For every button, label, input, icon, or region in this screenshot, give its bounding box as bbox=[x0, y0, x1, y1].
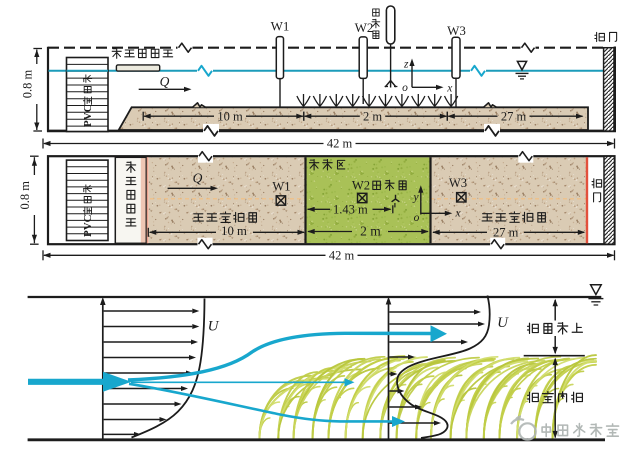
svg-text:W2: W2 bbox=[355, 20, 374, 35]
svg-text:27 m: 27 m bbox=[501, 109, 527, 123]
svg-text:o: o bbox=[402, 82, 408, 94]
svg-text:PVC: PVC bbox=[82, 214, 94, 237]
svg-text:W1: W1 bbox=[272, 180, 290, 194]
svg-text:2 m: 2 m bbox=[363, 109, 382, 123]
svg-text:2 m: 2 m bbox=[360, 223, 381, 238]
svg-text:z: z bbox=[403, 59, 409, 71]
svg-text:W3: W3 bbox=[447, 23, 466, 38]
svg-text:W3: W3 bbox=[449, 176, 467, 190]
svg-text:42 m: 42 m bbox=[327, 137, 353, 151]
svg-text:x: x bbox=[454, 208, 461, 220]
svg-text:W2: W2 bbox=[352, 179, 370, 193]
svg-text:1.43 m: 1.43 m bbox=[333, 202, 368, 216]
svg-text:o: o bbox=[414, 212, 420, 224]
svg-text:42 m: 42 m bbox=[329, 248, 355, 262]
svg-text:Q: Q bbox=[193, 171, 203, 186]
svg-text:y: y bbox=[412, 191, 419, 203]
svg-text:27 m: 27 m bbox=[493, 225, 519, 239]
svg-text:W1: W1 bbox=[271, 19, 290, 34]
svg-text:x: x bbox=[446, 82, 453, 94]
svg-text:10 m: 10 m bbox=[221, 224, 247, 238]
svg-text:10 m: 10 m bbox=[217, 109, 243, 123]
svg-text:0.8 m: 0.8 m bbox=[20, 69, 34, 98]
svg-text:U: U bbox=[497, 315, 509, 331]
svg-text:PVC: PVC bbox=[82, 104, 94, 127]
svg-text:Q: Q bbox=[160, 74, 170, 89]
svg-text:U: U bbox=[208, 319, 220, 335]
svg-text:0.8 m: 0.8 m bbox=[18, 181, 32, 210]
